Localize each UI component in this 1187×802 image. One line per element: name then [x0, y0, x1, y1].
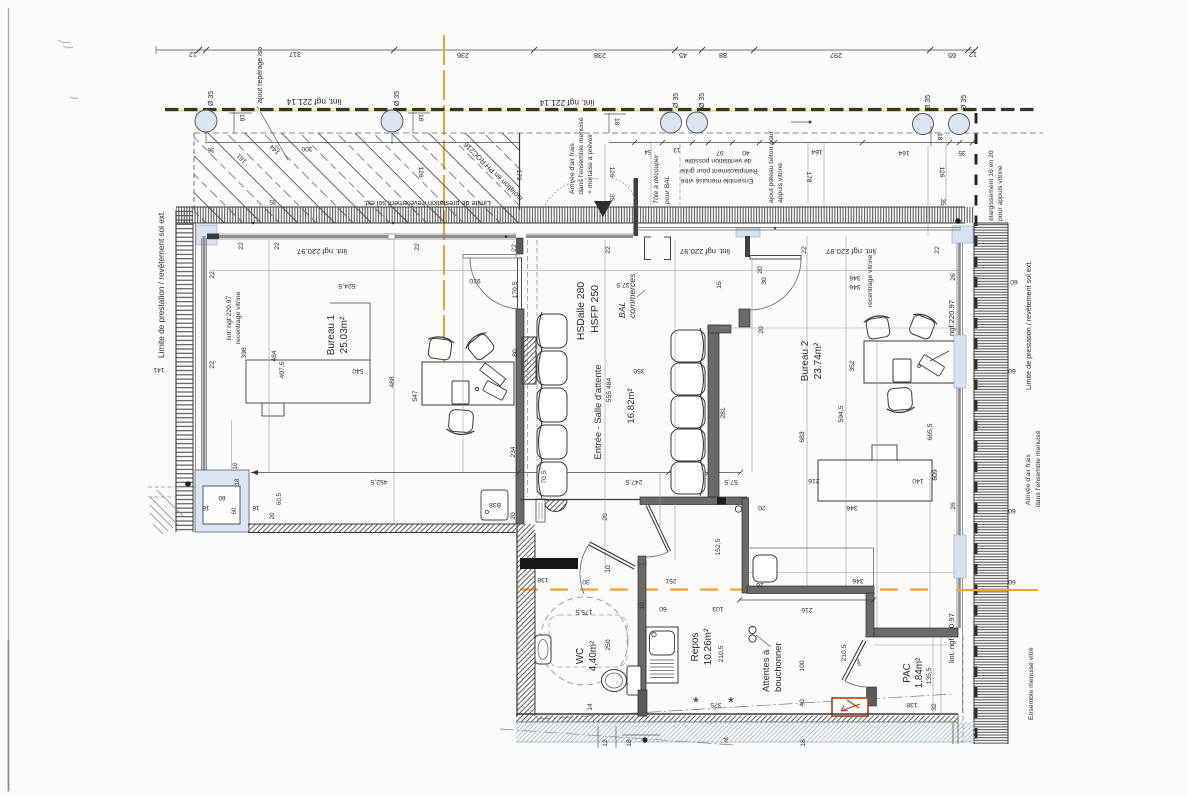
svg-text:26: 26: [950, 273, 957, 281]
svg-text:238: 238: [594, 51, 606, 60]
svg-text:216: 216: [808, 477, 820, 484]
svg-text:236: 236: [457, 51, 469, 60]
svg-text:Ø 35: Ø 35: [925, 95, 932, 110]
svg-text:4,40m²: 4,40m²: [588, 640, 599, 671]
svg-text:Arrivée d'air frais: Arrivée d'air frais: [569, 143, 576, 194]
svg-text:70,5: 70,5: [541, 470, 548, 483]
svg-text:ngf 220.97: ngf 220.97: [947, 300, 956, 336]
svg-text:appuis vitrine: appuis vitrine: [777, 163, 784, 203]
svg-text:lint. ngf 220.97: lint. ngf 220.97: [826, 247, 876, 256]
svg-text:57,5: 57,5: [724, 478, 737, 485]
svg-text:Entrée - Salle d'attente: Entrée - Salle d'attente: [592, 364, 603, 459]
svg-text:20: 20: [758, 326, 765, 334]
svg-text:18: 18: [626, 739, 633, 747]
svg-text:488: 488: [389, 376, 396, 388]
svg-text:452,5: 452,5: [370, 478, 387, 485]
svg-text:Ensemble menuisé vitré: Ensemble menuisé vitré: [681, 177, 754, 184]
svg-text:+ mortaise à prévoir: + mortaise à prévoir: [587, 133, 594, 194]
svg-text:234: 234: [510, 446, 517, 458]
svg-text:346: 346: [849, 274, 861, 281]
svg-text:25.03m²: 25.03m²: [339, 316, 350, 353]
svg-text:152,5: 152,5: [715, 538, 722, 555]
svg-text:103: 103: [712, 605, 724, 612]
svg-text:nt: nt: [723, 737, 730, 743]
svg-text:10: 10: [232, 462, 239, 470]
svg-text:ajout poteau béton pour: ajout poteau béton pour: [768, 130, 775, 203]
svg-text:40: 40: [799, 699, 806, 707]
svg-text:484: 484: [271, 350, 278, 362]
svg-text:15: 15: [716, 281, 723, 289]
svg-text:22: 22: [209, 271, 216, 279]
svg-text:22: 22: [414, 243, 421, 251]
svg-text:18: 18: [234, 478, 241, 486]
svg-text:lint. ngf 220.97: lint. ngf 220.97: [226, 295, 233, 340]
svg-text:bouchonner: bouchonner: [772, 642, 783, 692]
svg-text:30: 30: [761, 277, 768, 285]
svg-text:60,5: 60,5: [276, 492, 283, 505]
svg-text:23.74m²: 23.74m²: [813, 342, 824, 379]
svg-text:97: 97: [716, 149, 724, 156]
svg-text:Ensemble menuisé vitré: Ensemble menuisé vitré: [1028, 647, 1035, 720]
svg-text:12: 12: [602, 739, 609, 747]
svg-text:lint. ngf 220.97: lint. ngf 220.97: [947, 613, 956, 663]
svg-text:ajout repérage iso: ajout repérage iso: [257, 47, 264, 103]
svg-text:138: 138: [537, 576, 549, 583]
svg-text:20.: 20.: [756, 504, 766, 511]
svg-text:16.82m²: 16.82m²: [626, 388, 637, 424]
svg-text:317: 317: [289, 50, 301, 59]
svg-text:Ø 35: Ø 35: [699, 93, 706, 108]
svg-text:210,5: 210,5: [841, 644, 848, 661]
svg-text:20: 20: [602, 513, 609, 521]
svg-text:35: 35: [939, 198, 946, 206]
svg-text:20: 20: [269, 512, 276, 520]
svg-text:45: 45: [679, 51, 687, 60]
svg-text:HSFP 250: HSFP 250: [590, 285, 601, 333]
svg-text:36: 36: [207, 146, 215, 153]
svg-text:346: 346: [849, 283, 861, 290]
svg-text:54: 54: [644, 148, 652, 155]
svg-text:594,5: 594,5: [838, 405, 845, 422]
svg-text:16: 16: [202, 504, 210, 511]
svg-text:398: 398: [241, 347, 248, 359]
svg-text:Bureau 2: Bureau 2: [800, 340, 811, 381]
svg-text:250: 250: [605, 639, 612, 651]
svg-text:300: 300: [301, 145, 312, 152]
svg-text:élargissement 16 en 20: élargissement 16 en 20: [988, 150, 995, 221]
svg-text:20: 20: [757, 266, 764, 274]
svg-text:22: 22: [605, 246, 612, 254]
svg-text:22: 22: [511, 244, 518, 252]
svg-text:WC: WC: [575, 648, 586, 664]
svg-text:commerces: commerces: [627, 273, 637, 318]
svg-text:555 484: 555 484: [606, 378, 613, 403]
svg-text:Ø 35: Ø 35: [961, 95, 968, 110]
svg-text:346: 346: [852, 577, 864, 584]
svg-text:*: *: [693, 694, 699, 711]
svg-text:60: 60: [659, 605, 667, 612]
svg-text:Arrivée d'air frais: Arrivée d'air frais: [1025, 454, 1032, 505]
svg-text:18: 18: [936, 133, 943, 141]
svg-text:PAC: PAC: [902, 663, 913, 682]
svg-text:126: 126: [938, 166, 945, 177]
svg-text:88: 88: [719, 51, 727, 60]
svg-text:18: 18: [238, 114, 245, 122]
svg-text:20: 20: [510, 512, 517, 520]
svg-text:126: 126: [608, 166, 615, 177]
svg-text:10: 10: [605, 565, 612, 573]
svg-text:10.26m²: 10.26m²: [703, 628, 714, 665]
svg-text:lint. ngf 221.14: lint. ngf 221.14: [286, 97, 341, 107]
svg-text:346: 346: [846, 504, 858, 511]
svg-text:350: 350: [633, 367, 645, 374]
svg-text:10: 10: [639, 602, 646, 610]
svg-text:178: 178: [805, 171, 812, 182]
svg-text:135,5: 135,5: [926, 667, 933, 684]
svg-text:35: 35: [608, 194, 615, 202]
svg-text:164: 164: [898, 149, 909, 156]
svg-text:60: 60: [1008, 367, 1016, 374]
svg-text:35: 35: [269, 198, 277, 205]
svg-text:683: 683: [799, 431, 806, 443]
svg-text:Attentes à: Attentes à: [760, 649, 771, 692]
svg-text:14: 14: [587, 703, 594, 711]
svg-text:Bureau 1: Bureau 1: [326, 314, 337, 355]
svg-text:609: 609: [932, 469, 939, 481]
svg-text:pour BAL: pour BAL: [664, 175, 671, 205]
svg-text:*: *: [728, 694, 734, 711]
svg-text:lint. ngf 221.14: lint. ngf 221.14: [539, 98, 594, 108]
svg-text:dans l'ensemble menuisé: dans l'ensemble menuisé: [578, 117, 585, 194]
svg-text:179: 179: [515, 169, 522, 180]
svg-text:65: 65: [948, 51, 956, 60]
svg-text:26: 26: [950, 502, 957, 510]
svg-text:recentrage vitrine: recentrage vitrine: [235, 292, 242, 345]
svg-text:22: 22: [238, 242, 245, 250]
svg-text:22: 22: [934, 246, 941, 254]
svg-text:lint. ngf 220.97: lint. ngf 220.97: [680, 247, 730, 256]
svg-text:30: 30: [582, 578, 590, 585]
svg-text:Ø 35: Ø 35: [394, 91, 401, 106]
svg-text:138: 138: [906, 701, 918, 708]
svg-text:216: 216: [801, 606, 813, 613]
svg-text:164: 164: [811, 148, 822, 155]
svg-text:375: 375: [710, 701, 722, 708]
svg-text:210,5: 210,5: [718, 645, 725, 662]
svg-text:HSDalle 280: HSDalle 280: [576, 282, 587, 341]
svg-text:60: 60: [1010, 278, 1018, 285]
svg-text:297: 297: [830, 51, 842, 60]
svg-text:Repos: Repos: [690, 633, 701, 662]
svg-text:Ø 35: Ø 35: [208, 91, 215, 106]
svg-text:80: 80: [512, 349, 519, 357]
svg-text:recentrage vitrine: recentrage vitrine: [867, 255, 874, 308]
svg-text:Ø 35: Ø 35: [673, 93, 680, 108]
svg-text:22: 22: [209, 361, 216, 369]
svg-text:BAL: BAL: [617, 302, 627, 318]
svg-text:35: 35: [958, 149, 966, 156]
svg-text:251: 251: [665, 577, 677, 584]
svg-text:18: 18: [417, 114, 424, 122]
svg-text:140: 140: [912, 477, 924, 484]
svg-text:665,5: 665,5: [927, 423, 934, 440]
svg-text:de ventilation possible: de ventilation possible: [684, 157, 751, 164]
svg-text:lint. ngf 220.97: lint. ngf 220.97: [297, 247, 347, 256]
svg-text:12: 12: [969, 50, 977, 59]
svg-text:170,5: 170,5: [512, 281, 519, 298]
svg-text:18: 18: [800, 739, 807, 747]
svg-text:13: 13: [673, 146, 681, 153]
svg-text:pour appuis vitrine: pour appuis vitrine: [997, 165, 1004, 221]
svg-text:Limite de prestation / revêtem: Limite de prestation / revêtement sol ex…: [1024, 261, 1033, 390]
svg-text:Limite de prestation / revêtem: Limite de prestation / revêtement sol ex…: [157, 211, 166, 358]
svg-text:B38: B38: [489, 501, 501, 508]
svg-text:141: 141: [153, 366, 165, 373]
svg-text:Tôle à découper: Tôle à découper: [653, 154, 660, 204]
svg-text:910: 910: [469, 277, 481, 284]
svg-text:407,5: 407,5: [279, 361, 286, 378]
svg-text:60: 60: [1008, 578, 1016, 585]
svg-text:1.84m²: 1.84m²: [914, 657, 925, 688]
svg-text:547: 547: [412, 390, 419, 402]
svg-text:540: 540: [352, 367, 364, 374]
svg-text:26: 26: [756, 581, 764, 588]
svg-text:60: 60: [231, 507, 238, 515]
svg-text:60: 60: [218, 494, 226, 501]
svg-text:100: 100: [799, 660, 806, 672]
svg-text:dans l'ensemble menuisé: dans l'ensemble menuisé: [1035, 430, 1042, 507]
svg-text:22: 22: [274, 242, 281, 250]
svg-text:524,5: 524,5: [338, 282, 355, 289]
svg-text:32: 32: [931, 703, 938, 711]
svg-text:16: 16: [252, 504, 260, 511]
svg-text:Remplacement pour grille: Remplacement pour grille: [680, 167, 758, 174]
svg-text:175,5: 175,5: [575, 608, 592, 615]
svg-text:12: 12: [189, 50, 197, 59]
svg-text:247,5: 247,5: [625, 478, 642, 485]
svg-text:352: 352: [849, 360, 856, 372]
svg-text:281: 281: [720, 407, 727, 419]
svg-text:60: 60: [1008, 507, 1016, 514]
svg-text:37,5: 37,5: [616, 281, 629, 288]
svg-text:126: 126: [417, 166, 424, 177]
svg-text:40: 40: [742, 149, 750, 156]
svg-text:18: 18: [613, 118, 620, 126]
